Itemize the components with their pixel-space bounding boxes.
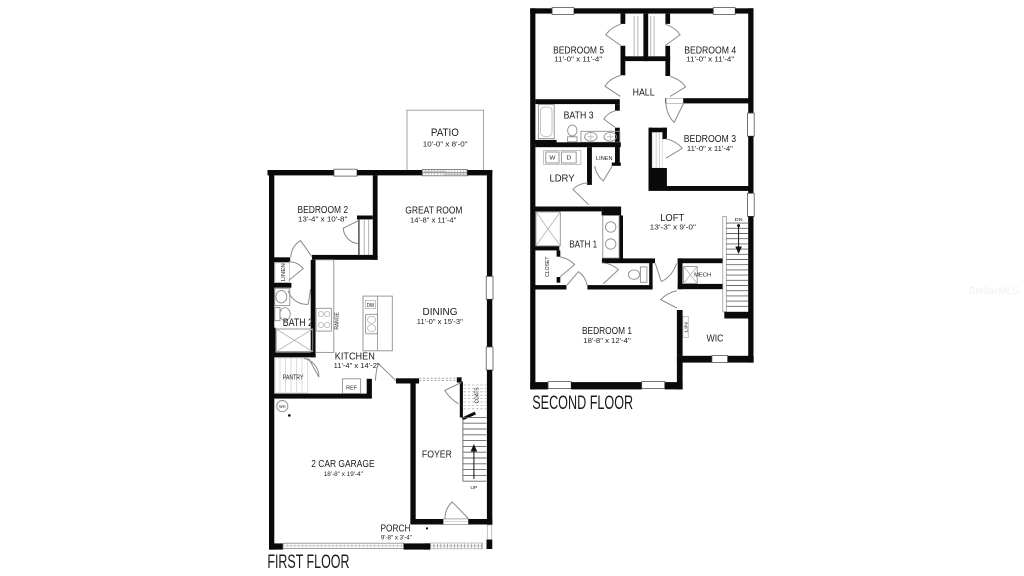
svg-text:9'-8" x 3'-4": 9'-8" x 3'-4" [381,534,412,541]
svg-text:11'-0" x 15'-3": 11'-0" x 15'-3" [417,317,463,326]
svg-text:LINEN: LINEN [281,263,287,281]
svg-text:COATS: COATS [474,387,480,403]
svg-text:10'-0" x 8'-0": 10'-0" x 8'-0" [423,140,468,149]
svg-text:18'-8" x 12'-4": 18'-8" x 12'-4" [583,336,631,345]
svg-text:WH: WH [279,404,285,409]
svg-text:HALL: HALL [633,87,655,98]
svg-text:MECH: MECH [694,273,711,279]
svg-text:DN: DN [735,217,744,223]
svg-text:BATH 3: BATH 3 [564,110,594,121]
svg-text:PATIO: PATIO [431,127,459,139]
svg-text:BATH 2: BATH 2 [283,317,313,329]
svg-text:BATH 1: BATH 1 [569,240,597,251]
svg-text:SECOND FLOOR: SECOND FLOOR [532,393,633,414]
svg-text:2 CAR GARAGE: 2 CAR GARAGE [311,458,374,470]
svg-text:FOYER: FOYER [422,450,452,461]
svg-text:11'-0" x 11'-4": 11'-0" x 11'-4" [686,55,734,64]
svg-text:FIRST FLOOR: FIRST FLOOR [267,552,349,573]
svg-text:PANTRY: PANTRY [283,374,304,381]
svg-text:LIN: LIN [683,322,688,333]
svg-text:13'-3" x 9'-0": 13'-3" x 9'-0" [650,222,697,231]
svg-text:WIC: WIC [707,334,724,345]
svg-text:LINEN: LINEN [596,156,613,162]
svg-text:StellarMLS: StellarMLS [969,285,1020,297]
svg-text:11'-4" x 14'-2": 11'-4" x 14'-2" [334,361,380,370]
svg-text:REF: REF [346,386,358,392]
svg-text:11'-0" x 11'-4": 11'-0" x 11'-4" [554,55,602,64]
svg-text:DW: DW [367,303,375,309]
svg-text:14'-8" x 11'-4": 14'-8" x 11'-4" [410,215,457,224]
svg-text:RANGE: RANGE [334,312,340,330]
svg-text:18'-8" x 19'-4": 18'-8" x 19'-4" [324,471,363,478]
svg-text:CLOSET: CLOSET [545,256,551,277]
svg-text:13'-4" x 10'-8": 13'-4" x 10'-8" [298,214,348,223]
svg-text:UP: UP [470,485,477,491]
svg-text:11'-0" x 11'-4": 11'-0" x 11'-4" [687,144,733,153]
svg-text:PORCH: PORCH [381,523,411,534]
svg-text:D: D [566,156,571,162]
svg-text:LDRY: LDRY [550,174,575,185]
